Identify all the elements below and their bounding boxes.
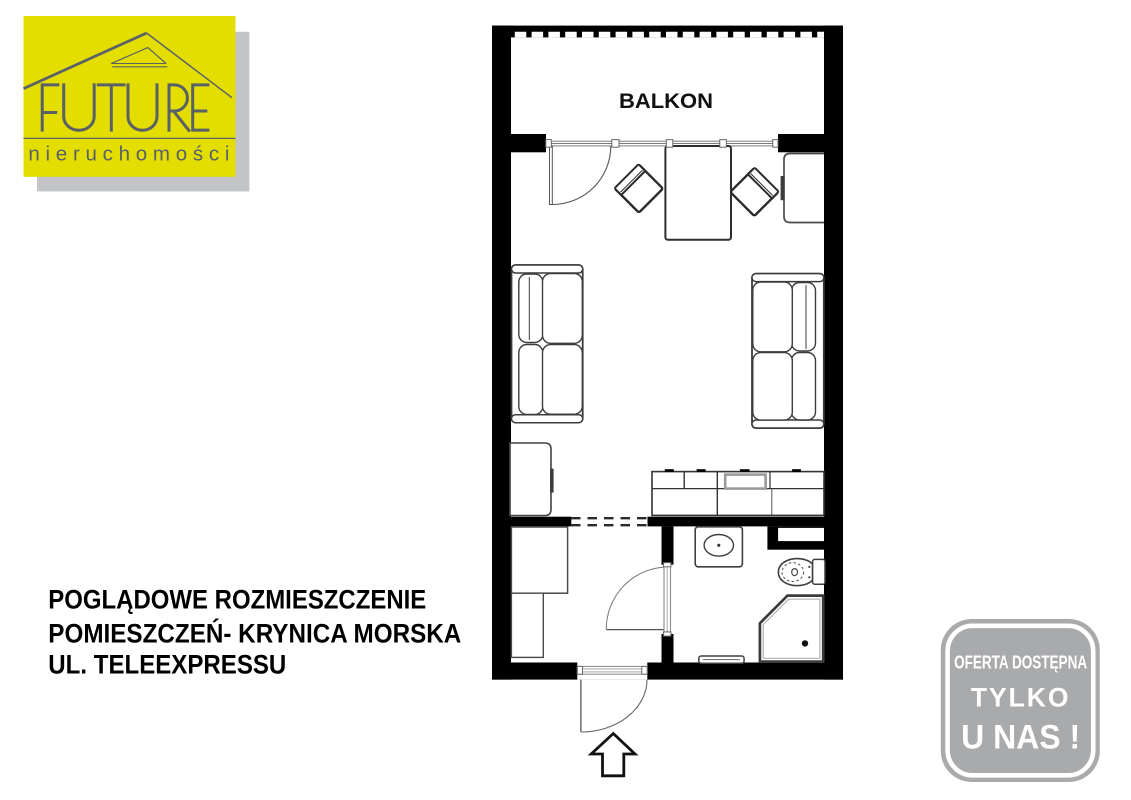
svg-text:POGLĄDOWE ROZMIESZCZENIE: POGLĄDOWE ROZMIESZCZENIE [48, 585, 426, 615]
svg-text:n i e r u c h o m o ś c i: n i e r u c h o m o ś c i [28, 144, 229, 166]
svg-text:UL. TELEEXPRESSU: UL. TELEEXPRESSU [48, 650, 286, 680]
svg-text:U NAS !: U NAS ! [961, 718, 1080, 756]
svg-text:OFERTA DOSTĘPNA: OFERTA DOSTĘPNA [954, 652, 1087, 673]
svg-text:POMIESZCZEŃ- KRYNICA MORSKA: POMIESZCZEŃ- KRYNICA MORSKA [48, 617, 461, 648]
svg-text:TYLKO: TYLKO [971, 683, 1071, 713]
svg-text:BALKON: BALKON [619, 89, 713, 113]
